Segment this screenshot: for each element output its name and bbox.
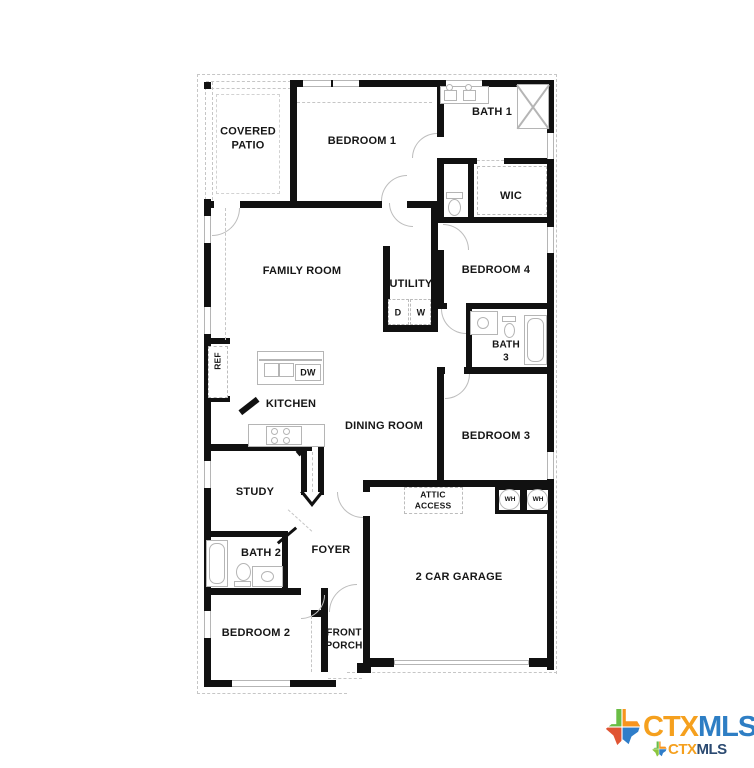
door-swing-arc — [389, 203, 413, 227]
room-label-bedroom2: BEDROOM 2 — [222, 627, 290, 641]
roofline — [197, 74, 557, 75]
island-sink — [264, 363, 279, 377]
window — [204, 611, 211, 638]
bath1-sink — [463, 90, 476, 101]
wall — [363, 516, 370, 612]
island-counter-edge — [259, 359, 322, 361]
patio-post — [204, 82, 211, 89]
logo-small-ctx-text: CTX — [668, 742, 697, 757]
bath1-toilet-bowl — [448, 199, 461, 216]
wall — [357, 663, 371, 673]
wall — [466, 303, 553, 309]
bath2-toilet-bowl — [236, 563, 251, 581]
wall — [290, 80, 297, 208]
fixture-label-ref: REF — [213, 352, 224, 370]
garage-door — [394, 660, 529, 665]
bath2-tub-inner — [209, 543, 225, 584]
room-label-bath1: BATH 1 — [472, 106, 512, 120]
patio-edge — [206, 81, 291, 82]
bath3-tub-inner — [527, 318, 544, 362]
bath3-sink — [477, 317, 489, 329]
fixture-label-washer: W — [417, 307, 426, 318]
patio-edge — [205, 82, 206, 200]
wall — [547, 80, 554, 670]
logo-ctx-text: CTX — [643, 713, 698, 742]
room-label-bedroom1: BEDROOM 1 — [328, 135, 396, 149]
door-swing-arc — [329, 584, 357, 612]
room-label-wic: WIC — [500, 190, 522, 204]
wall — [529, 658, 554, 667]
room-label-family-room: FAMILY ROOM — [263, 265, 342, 279]
roofline — [197, 693, 347, 694]
wall — [468, 158, 474, 222]
island-sink — [279, 363, 294, 377]
wall — [383, 325, 438, 332]
bath3-toilet-tank — [502, 316, 516, 322]
wall — [204, 531, 287, 537]
window — [547, 452, 554, 479]
roofline — [556, 74, 557, 674]
patio-edge — [206, 88, 291, 89]
burner — [271, 437, 278, 444]
fixture-label-wh1: WH — [505, 496, 516, 504]
door-swing-arc — [445, 374, 470, 399]
bath1-faucet — [446, 84, 453, 91]
room-label-attic-access: ATTIC ACCESS — [415, 489, 452, 510]
bath2-sink — [261, 571, 274, 582]
door-swing-arc — [337, 492, 363, 518]
bath2-toilet-tank — [234, 581, 251, 587]
room-label-kitchen: KITCHEN — [266, 398, 316, 412]
room-label-utility: UTILITY — [390, 278, 433, 292]
wall — [204, 338, 230, 344]
burner — [283, 428, 290, 435]
wall — [437, 217, 553, 223]
wic-opening — [477, 160, 504, 161]
roofline — [197, 74, 198, 694]
wall — [437, 158, 444, 222]
ctxmls-logo-small: CTXMLS — [651, 741, 727, 757]
room-label-garage: 2 CAR GARAGE — [416, 571, 503, 585]
bath1-faucet — [465, 84, 472, 91]
fixture-label-dw: DW — [300, 367, 315, 378]
room-label-bath3: BATH 3 — [492, 340, 520, 365]
door-swing-arc — [412, 133, 437, 158]
door-swing-arc — [443, 224, 469, 250]
bath1-toilet-tank — [446, 192, 463, 199]
door-swing-arc — [212, 208, 240, 236]
wall — [318, 447, 324, 495]
window — [333, 80, 359, 87]
texas-icon-small — [651, 741, 667, 757]
ceiling-line — [297, 102, 432, 103]
room-label-bedroom3: BEDROOM 3 — [462, 430, 530, 444]
window — [232, 680, 290, 687]
wall — [437, 372, 444, 482]
room-label-dining-room: DINING ROOM — [345, 420, 423, 434]
wall — [437, 250, 444, 308]
patio-edge — [212, 82, 213, 200]
pantry-door-chevron-inner — [304, 492, 320, 502]
texas-icon — [603, 708, 641, 746]
door-swing-arc — [441, 309, 466, 334]
room-label-study: STUDY — [236, 486, 274, 500]
porch-edge — [328, 678, 362, 679]
logo-mls-text: MLS — [698, 713, 754, 742]
fixture-label-dryer: D — [395, 307, 402, 318]
burner — [271, 428, 278, 435]
wall — [240, 201, 382, 208]
window — [547, 227, 554, 253]
door-swing-arc — [381, 175, 407, 201]
burner — [283, 437, 290, 444]
window — [204, 307, 211, 334]
wall — [504, 158, 553, 164]
wall — [363, 480, 370, 492]
wall — [204, 201, 214, 208]
room-label-bath2: BATH 2 — [241, 547, 281, 561]
window — [547, 133, 554, 159]
bath3-toilet-bowl — [504, 323, 515, 338]
wall — [368, 658, 394, 667]
fixture-label-wh2: WH — [533, 496, 544, 504]
wall-angled — [238, 397, 259, 415]
room-label-bedroom4: BEDROOM 4 — [462, 264, 530, 278]
window — [204, 216, 211, 243]
pantry-dashes — [312, 452, 313, 492]
logo-small-mls-text: MLS — [697, 742, 727, 757]
wall — [464, 367, 553, 374]
wall — [204, 588, 301, 595]
room-label-covered-patio: COVERED PATIO — [220, 125, 276, 153]
room-label-front-porch: FRONT PORCH — [325, 628, 362, 653]
bath1-sink — [444, 90, 457, 101]
window — [204, 461, 211, 488]
window — [303, 80, 331, 87]
floor-plan: COVERED PATIO BEDROOM 1 BATH 1 WIC FAMIL… — [0, 0, 754, 768]
room-label-foyer: FOYER — [312, 544, 351, 558]
closet-dashes — [311, 616, 312, 672]
roofline — [347, 672, 557, 673]
